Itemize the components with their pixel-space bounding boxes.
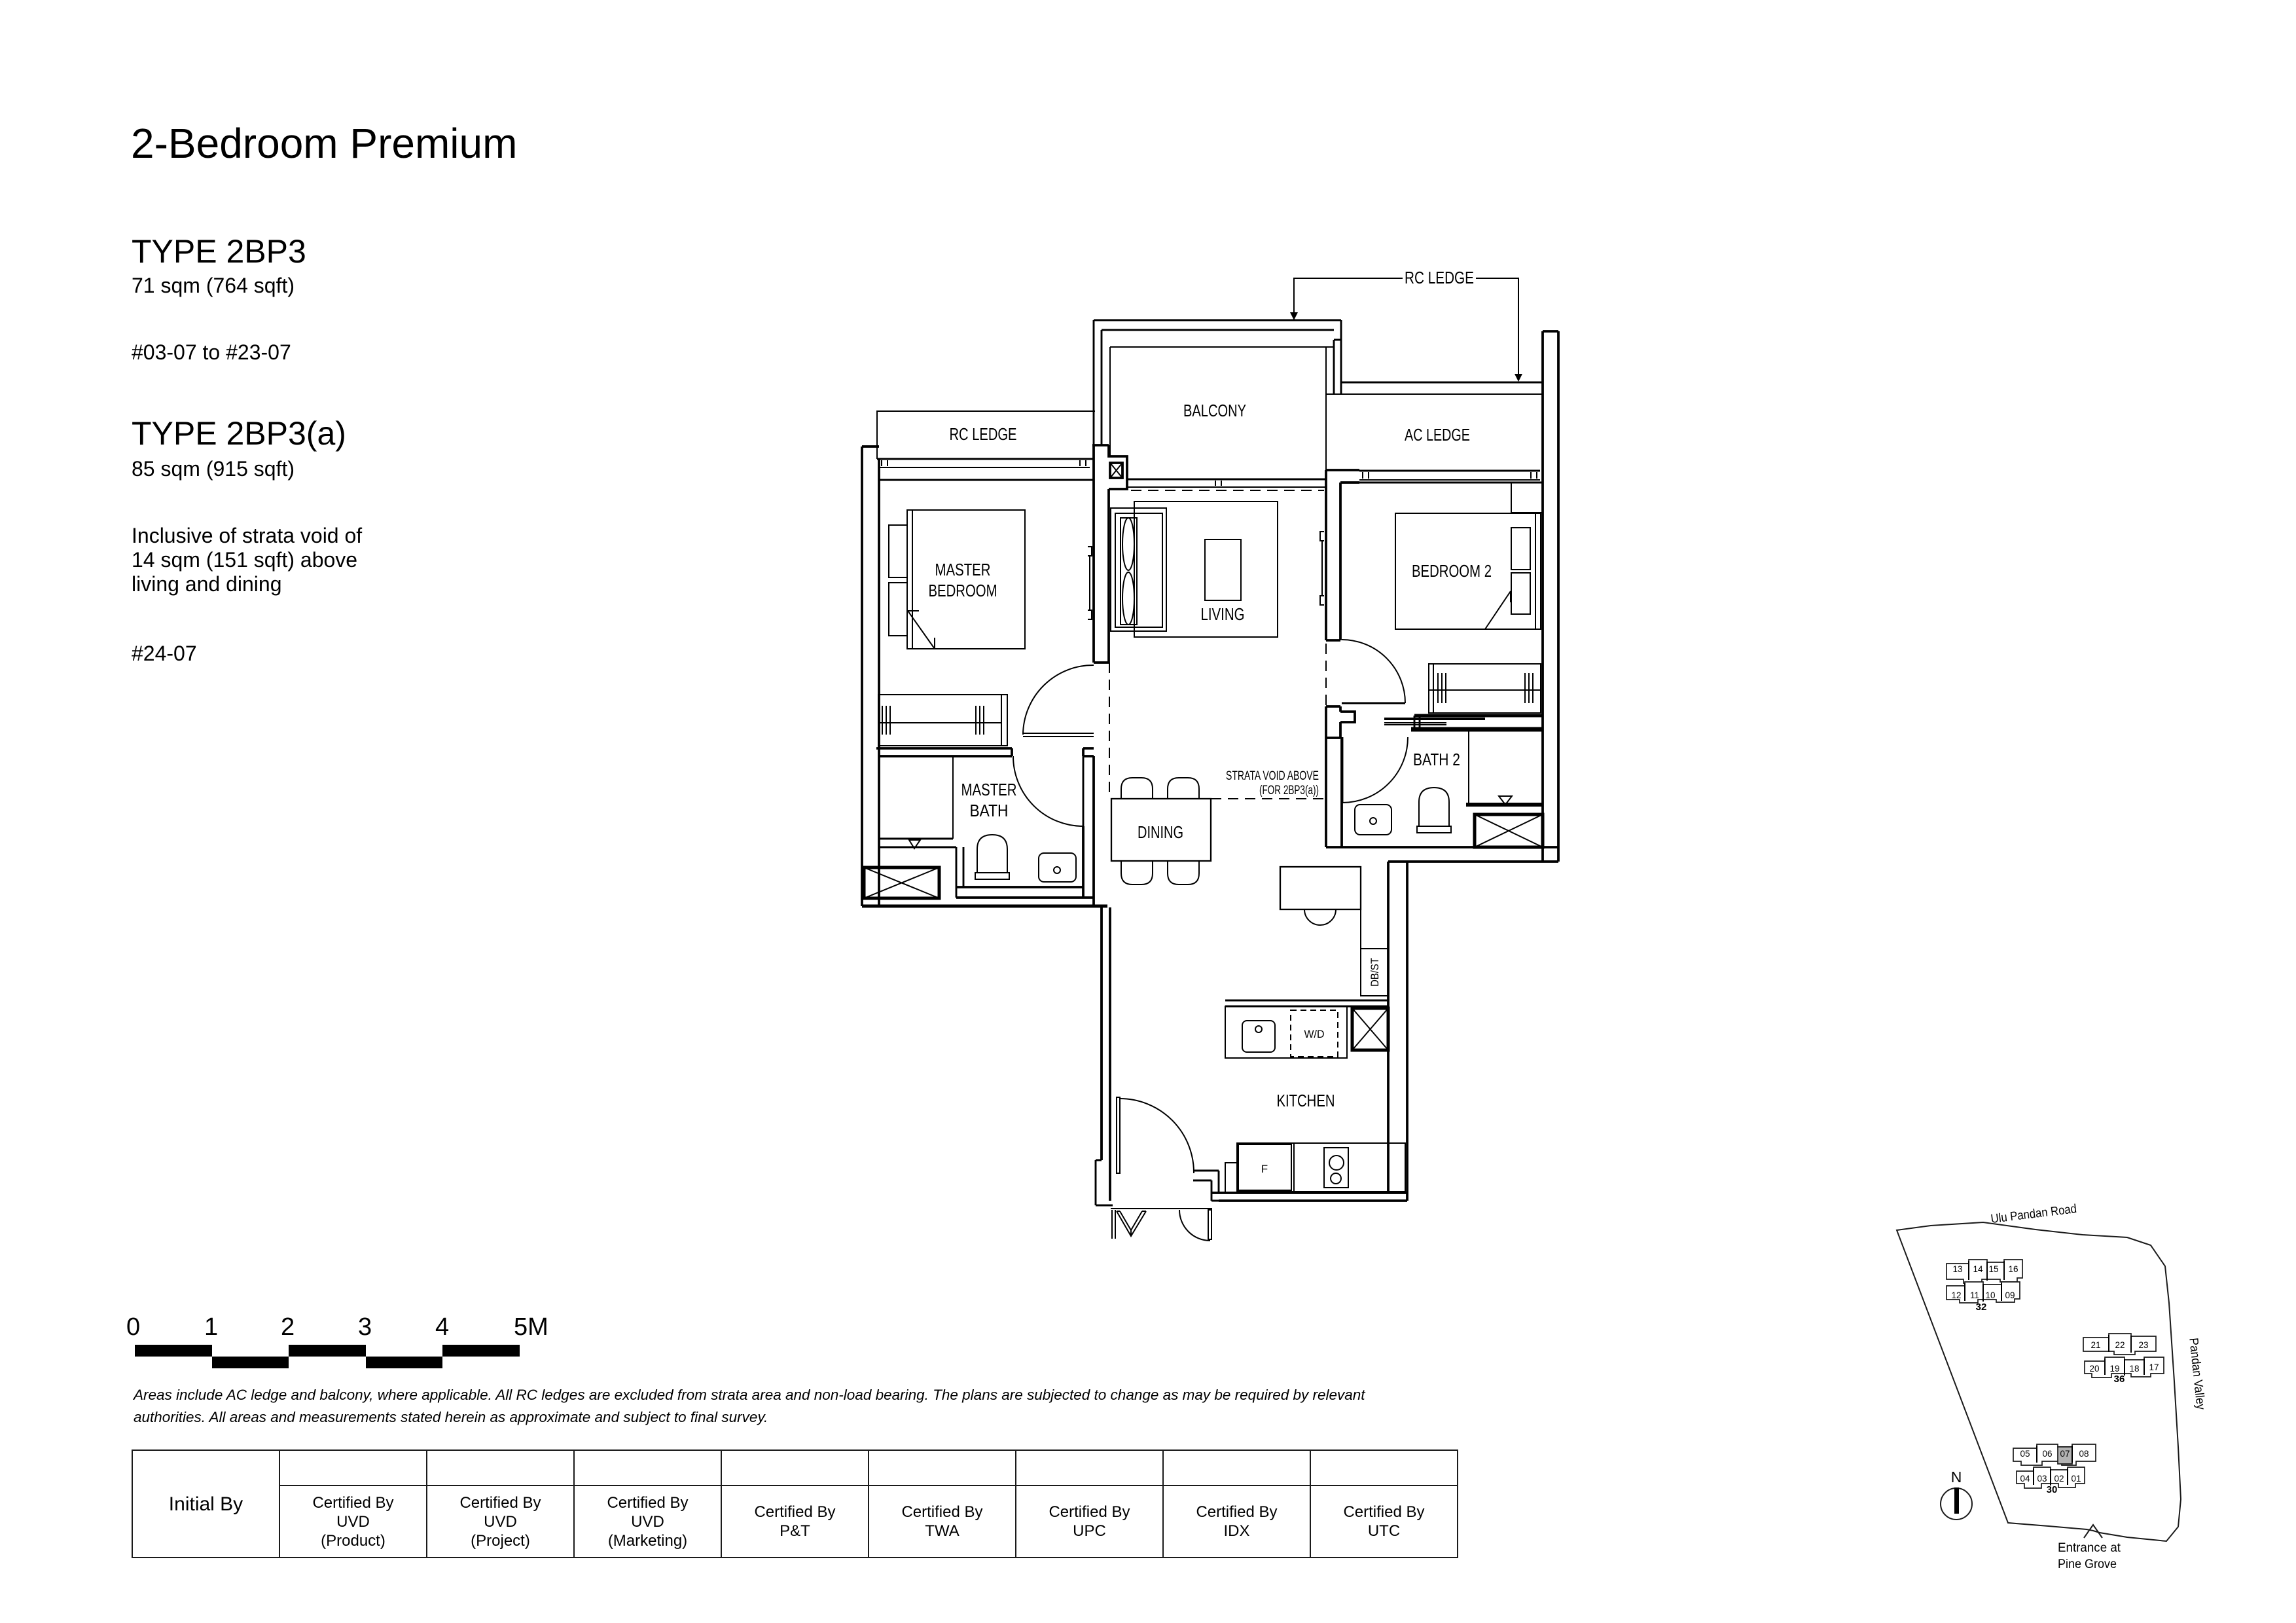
svg-text:09: 09	[2005, 1290, 2015, 1300]
svg-text:MASTER: MASTER	[961, 780, 1017, 799]
svg-text:36: 36	[2114, 1374, 2125, 1385]
svg-text:19: 19	[2109, 1364, 2119, 1374]
svg-text:20: 20	[2089, 1364, 2099, 1374]
svg-text:BALCONY: BALCONY	[1183, 401, 1246, 420]
svg-text:STRATA VOID ABOVE: STRATA VOID ABOVE	[1226, 769, 1319, 783]
svg-text:14: 14	[1973, 1264, 1983, 1274]
svg-text:Ulu Pandan Road: Ulu Pandan Road	[1990, 1202, 2078, 1226]
svg-text:05: 05	[2020, 1449, 2030, 1459]
svg-text:LIVING: LIVING	[1201, 604, 1245, 624]
svg-text:30: 30	[2047, 1484, 2058, 1495]
svg-text:RC LEDGE: RC LEDGE	[950, 424, 1017, 444]
svg-text:10: 10	[1985, 1290, 1995, 1300]
svg-text:13: 13	[1952, 1264, 1962, 1274]
svg-text:DB/ST: DB/ST	[1369, 958, 1381, 987]
svg-text:Pine Grove: Pine Grove	[2058, 1558, 2117, 1571]
svg-text:02: 02	[2054, 1474, 2064, 1484]
svg-text:(FOR 2BP3(a)): (FOR 2BP3(a))	[1259, 784, 1319, 797]
svg-text:12: 12	[1951, 1290, 1961, 1300]
svg-text:RC LEDGE: RC LEDGE	[1405, 268, 1474, 287]
svg-text:22: 22	[2115, 1340, 2125, 1350]
svg-text:MASTER: MASTER	[935, 560, 991, 579]
svg-text:W/D: W/D	[1304, 1028, 1325, 1040]
svg-text:23: 23	[2138, 1340, 2148, 1350]
svg-text:04: 04	[2020, 1474, 2030, 1484]
svg-text:21: 21	[2090, 1340, 2100, 1350]
svg-text:18: 18	[2129, 1364, 2139, 1374]
svg-text:06: 06	[2042, 1449, 2052, 1459]
svg-text:32: 32	[1976, 1302, 1987, 1313]
svg-text:BATH 2: BATH 2	[1413, 750, 1460, 769]
svg-text:08: 08	[2079, 1449, 2089, 1459]
svg-text:KITCHEN: KITCHEN	[1277, 1091, 1335, 1110]
svg-text:N: N	[1951, 1468, 1962, 1486]
svg-text:F: F	[1261, 1163, 1268, 1175]
svg-text:01: 01	[2071, 1474, 2081, 1484]
svg-text:17: 17	[2149, 1362, 2159, 1372]
svg-text:Pandan Valley: Pandan Valley	[2186, 1338, 2207, 1411]
svg-text:DINING: DINING	[1138, 822, 1183, 842]
svg-text:07: 07	[2060, 1449, 2070, 1459]
svg-text:11: 11	[1970, 1290, 1979, 1300]
svg-text:AC LEDGE: AC LEDGE	[1405, 425, 1470, 445]
svg-text:16: 16	[2008, 1264, 2018, 1274]
svg-text:BATH: BATH	[970, 801, 1009, 820]
svg-text:Entrance at: Entrance at	[2058, 1541, 2121, 1555]
svg-text:BEDROOM: BEDROOM	[929, 581, 997, 600]
svg-text:15: 15	[1988, 1264, 1998, 1274]
svg-text:BEDROOM 2: BEDROOM 2	[1412, 561, 1492, 581]
svg-text:03: 03	[2037, 1474, 2047, 1484]
